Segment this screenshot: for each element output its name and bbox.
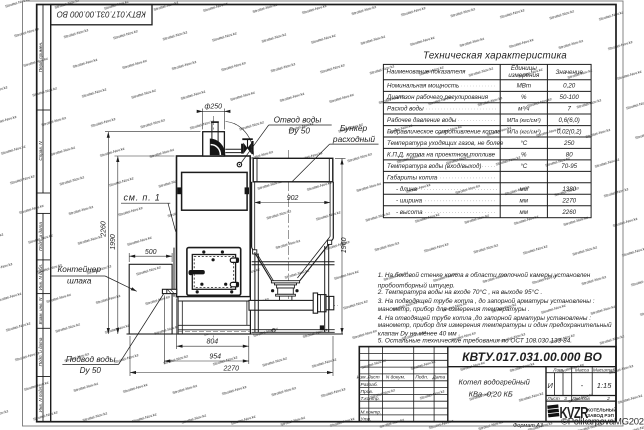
svg-text:МПа (кгс/см²): МПа (кгс/см²)	[507, 118, 541, 124]
svg-text:2270: 2270	[561, 197, 576, 204]
svg-text:мм: мм	[520, 186, 529, 193]
svg-text:Отвод воды: Отвод воды	[274, 115, 322, 124]
svg-text:Подвод воды: Подвод воды	[66, 355, 116, 364]
svg-text:Пров.: Пров.	[361, 389, 374, 395]
svg-text:Диапазон рабочего регулировани: Диапазон рабочего регулирования	[386, 94, 489, 101]
svg-text:Котел водогрейный: Котел водогрейный	[459, 378, 531, 387]
svg-text:2: 2	[606, 396, 610, 402]
svg-text:Габариты котла: Габариты котла	[387, 174, 438, 181]
svg-text:80: 80	[566, 151, 573, 158]
svg-text:Техническая характеристика: Техническая характеристика	[423, 51, 567, 62]
svg-text:Масса: Масса	[575, 368, 590, 374]
svg-text:Гидравлическое сопротивление к: Гидравлическое сопротивление котла	[387, 129, 501, 136]
svg-text:КВТУ.017.031.00.000 ВО: КВТУ.017.031.00.000 ВО	[462, 350, 602, 364]
svg-text:Масштаб: Масштаб	[593, 368, 616, 374]
svg-text:расходный: расходный	[332, 134, 375, 144]
svg-text:МПа (кгс/см²): МПа (кгс/см²)	[507, 130, 541, 136]
svg-text:%: %	[521, 94, 527, 101]
svg-text:902: 902	[287, 195, 299, 202]
svg-text:Взам. инв. N: Взам. инв. N	[38, 297, 43, 324]
svg-text:манометр, прибор для измерения: манометр, прибор для измерения температу…	[378, 321, 612, 329]
svg-text:мм: мм	[520, 197, 529, 204]
svg-text:2260: 2260	[101, 221, 108, 238]
svg-text:2270: 2270	[223, 365, 240, 372]
svg-text:МВт: МВт	[517, 83, 531, 90]
svg-text:см. п. 1: см. п. 1	[123, 193, 160, 203]
svg-text:©PolikarpovaMG2021: ©PolikarpovaMG2021	[561, 417, 644, 428]
svg-text:- ширина: - ширина	[396, 197, 423, 204]
svg-text:4. На отводящей трубе котла ,: 4. На отводящей трубе котла ,до запорной…	[378, 314, 591, 322]
svg-text:1. На боковой стенке котла в: 1. На боковой стенке котла в области топ…	[378, 271, 591, 279]
svg-text:- длина: - длина	[396, 186, 418, 193]
svg-text:И: И	[548, 381, 554, 390]
svg-text:Разраб.: Разраб.	[361, 382, 378, 388]
svg-text:Лист: Лист	[546, 396, 559, 402]
svg-text:Номинальная мощность: Номинальная мощность	[387, 83, 459, 90]
svg-text:- высота: - высота	[396, 209, 423, 216]
svg-text:1960: 1960	[341, 237, 348, 253]
svg-text:%: %	[521, 151, 527, 158]
svg-text:Перв. примен.: Перв. примен.	[38, 42, 43, 73]
svg-text:М.контр.: М.контр.	[361, 410, 382, 416]
svg-text:м³/ч: м³/ч	[518, 106, 530, 113]
svg-text:мм: мм	[520, 209, 529, 216]
svg-text:1380: 1380	[562, 186, 576, 193]
svg-text:Подп.: Подп.	[415, 375, 428, 381]
svg-text:КВТУ.017.031.00.000 ВО: КВТУ.017.031.00.000 ВО	[57, 10, 146, 19]
svg-text:Инв. N дубл.: Инв. N дубл.	[38, 264, 43, 291]
svg-text:50-100: 50-100	[560, 94, 580, 101]
svg-text:Инв. N подл.: Инв. N подл.	[38, 386, 43, 413]
svg-text:Дата: Дата	[431, 375, 445, 381]
svg-text:Изм.: Изм.	[357, 375, 367, 381]
svg-text:ф250: ф250	[205, 104, 223, 111]
svg-text:2. Температура воды на входе: 2. Температура воды на входе 70°С , на в…	[377, 288, 542, 296]
svg-text:Температура уходящих газов, не: Температура уходящих газов, не более	[387, 140, 504, 147]
svg-text:Значение: Значение	[556, 69, 584, 76]
svg-text:954: 954	[209, 354, 221, 361]
svg-text:Листов: Листов	[571, 396, 590, 402]
svg-text:°С: °С	[520, 140, 527, 147]
svg-text:3: 3	[564, 396, 567, 402]
svg-text:Утв.: Утв.	[361, 416, 372, 422]
svg-text:1:15: 1:15	[597, 381, 612, 390]
svg-text:Лит.: Лит.	[552, 368, 564, 374]
svg-text:70-95: 70-95	[561, 163, 577, 170]
svg-text:5. Остальные технические треб: 5. Остальные технические требования по О…	[378, 336, 572, 344]
svg-text:250: 250	[563, 140, 575, 147]
svg-text:Бункер: Бункер	[340, 123, 368, 133]
svg-text:измерения: измерения	[508, 72, 540, 79]
svg-text:7: 7	[567, 106, 571, 113]
svg-text:500: 500	[145, 249, 157, 256]
svg-text:Подп. и дата: Подп. и дата	[38, 337, 43, 366]
svg-text:2260: 2260	[561, 209, 576, 216]
svg-text:Dy 50: Dy 50	[80, 366, 102, 375]
svg-text:К.П.Д. котла на проектном топл: К.П.Д. котла на проектном топливе	[387, 151, 496, 158]
svg-text:0,20: 0,20	[563, 83, 576, 90]
svg-text:Подп. и дата: Подп. и дата	[38, 222, 43, 251]
svg-text:0,02(0,2): 0,02(0,2)	[557, 129, 582, 136]
svg-text:Температура воды (вход/выход): Температура воды (вход/выход)	[387, 163, 481, 170]
svg-text:Рабочее давление воды: Рабочее давление воды	[387, 117, 457, 124]
svg-text:Т.контр.: Т.контр.	[361, 396, 380, 402]
svg-text:N докум.: N докум.	[386, 375, 405, 381]
svg-text:1990: 1990	[110, 234, 117, 250]
svg-text:Лист: Лист	[366, 375, 379, 381]
svg-text:0,6(6,0): 0,6(6,0)	[559, 117, 580, 124]
svg-text:Dy 50: Dy 50	[289, 126, 311, 135]
svg-text:Единицы: Единицы	[511, 65, 537, 72]
svg-text:КВа -0,20 КБ: КВа -0,20 КБ	[469, 389, 513, 398]
svg-text:Справ. N: Справ. N	[38, 141, 43, 161]
svg-text:Формат А3: Формат А3	[513, 423, 544, 429]
svg-text:804: 804	[206, 339, 218, 346]
svg-text:Контейнер: Контейнер	[57, 265, 101, 274]
svg-text:Наименование показателя: Наименование показателя	[387, 69, 467, 76]
svg-text:шлака: шлака	[67, 277, 92, 286]
svg-text:°С: °С	[520, 163, 527, 170]
svg-text:КОТЕЛЬНЫЙ: КОТЕЛЬНЫЙ	[587, 405, 616, 412]
svg-text:Расход воды: Расход воды	[387, 106, 424, 113]
svg-text:клапан Dy не менее 40 мм .: клапан Dy не менее 40 мм .	[378, 330, 460, 337]
svg-text:манометр, прибор для измерения: манометр, прибор для измерения температу…	[378, 305, 530, 313]
svg-text:3. На подводящей трубе котла: 3. На подводящей трубе котла , до запорн…	[378, 297, 595, 305]
